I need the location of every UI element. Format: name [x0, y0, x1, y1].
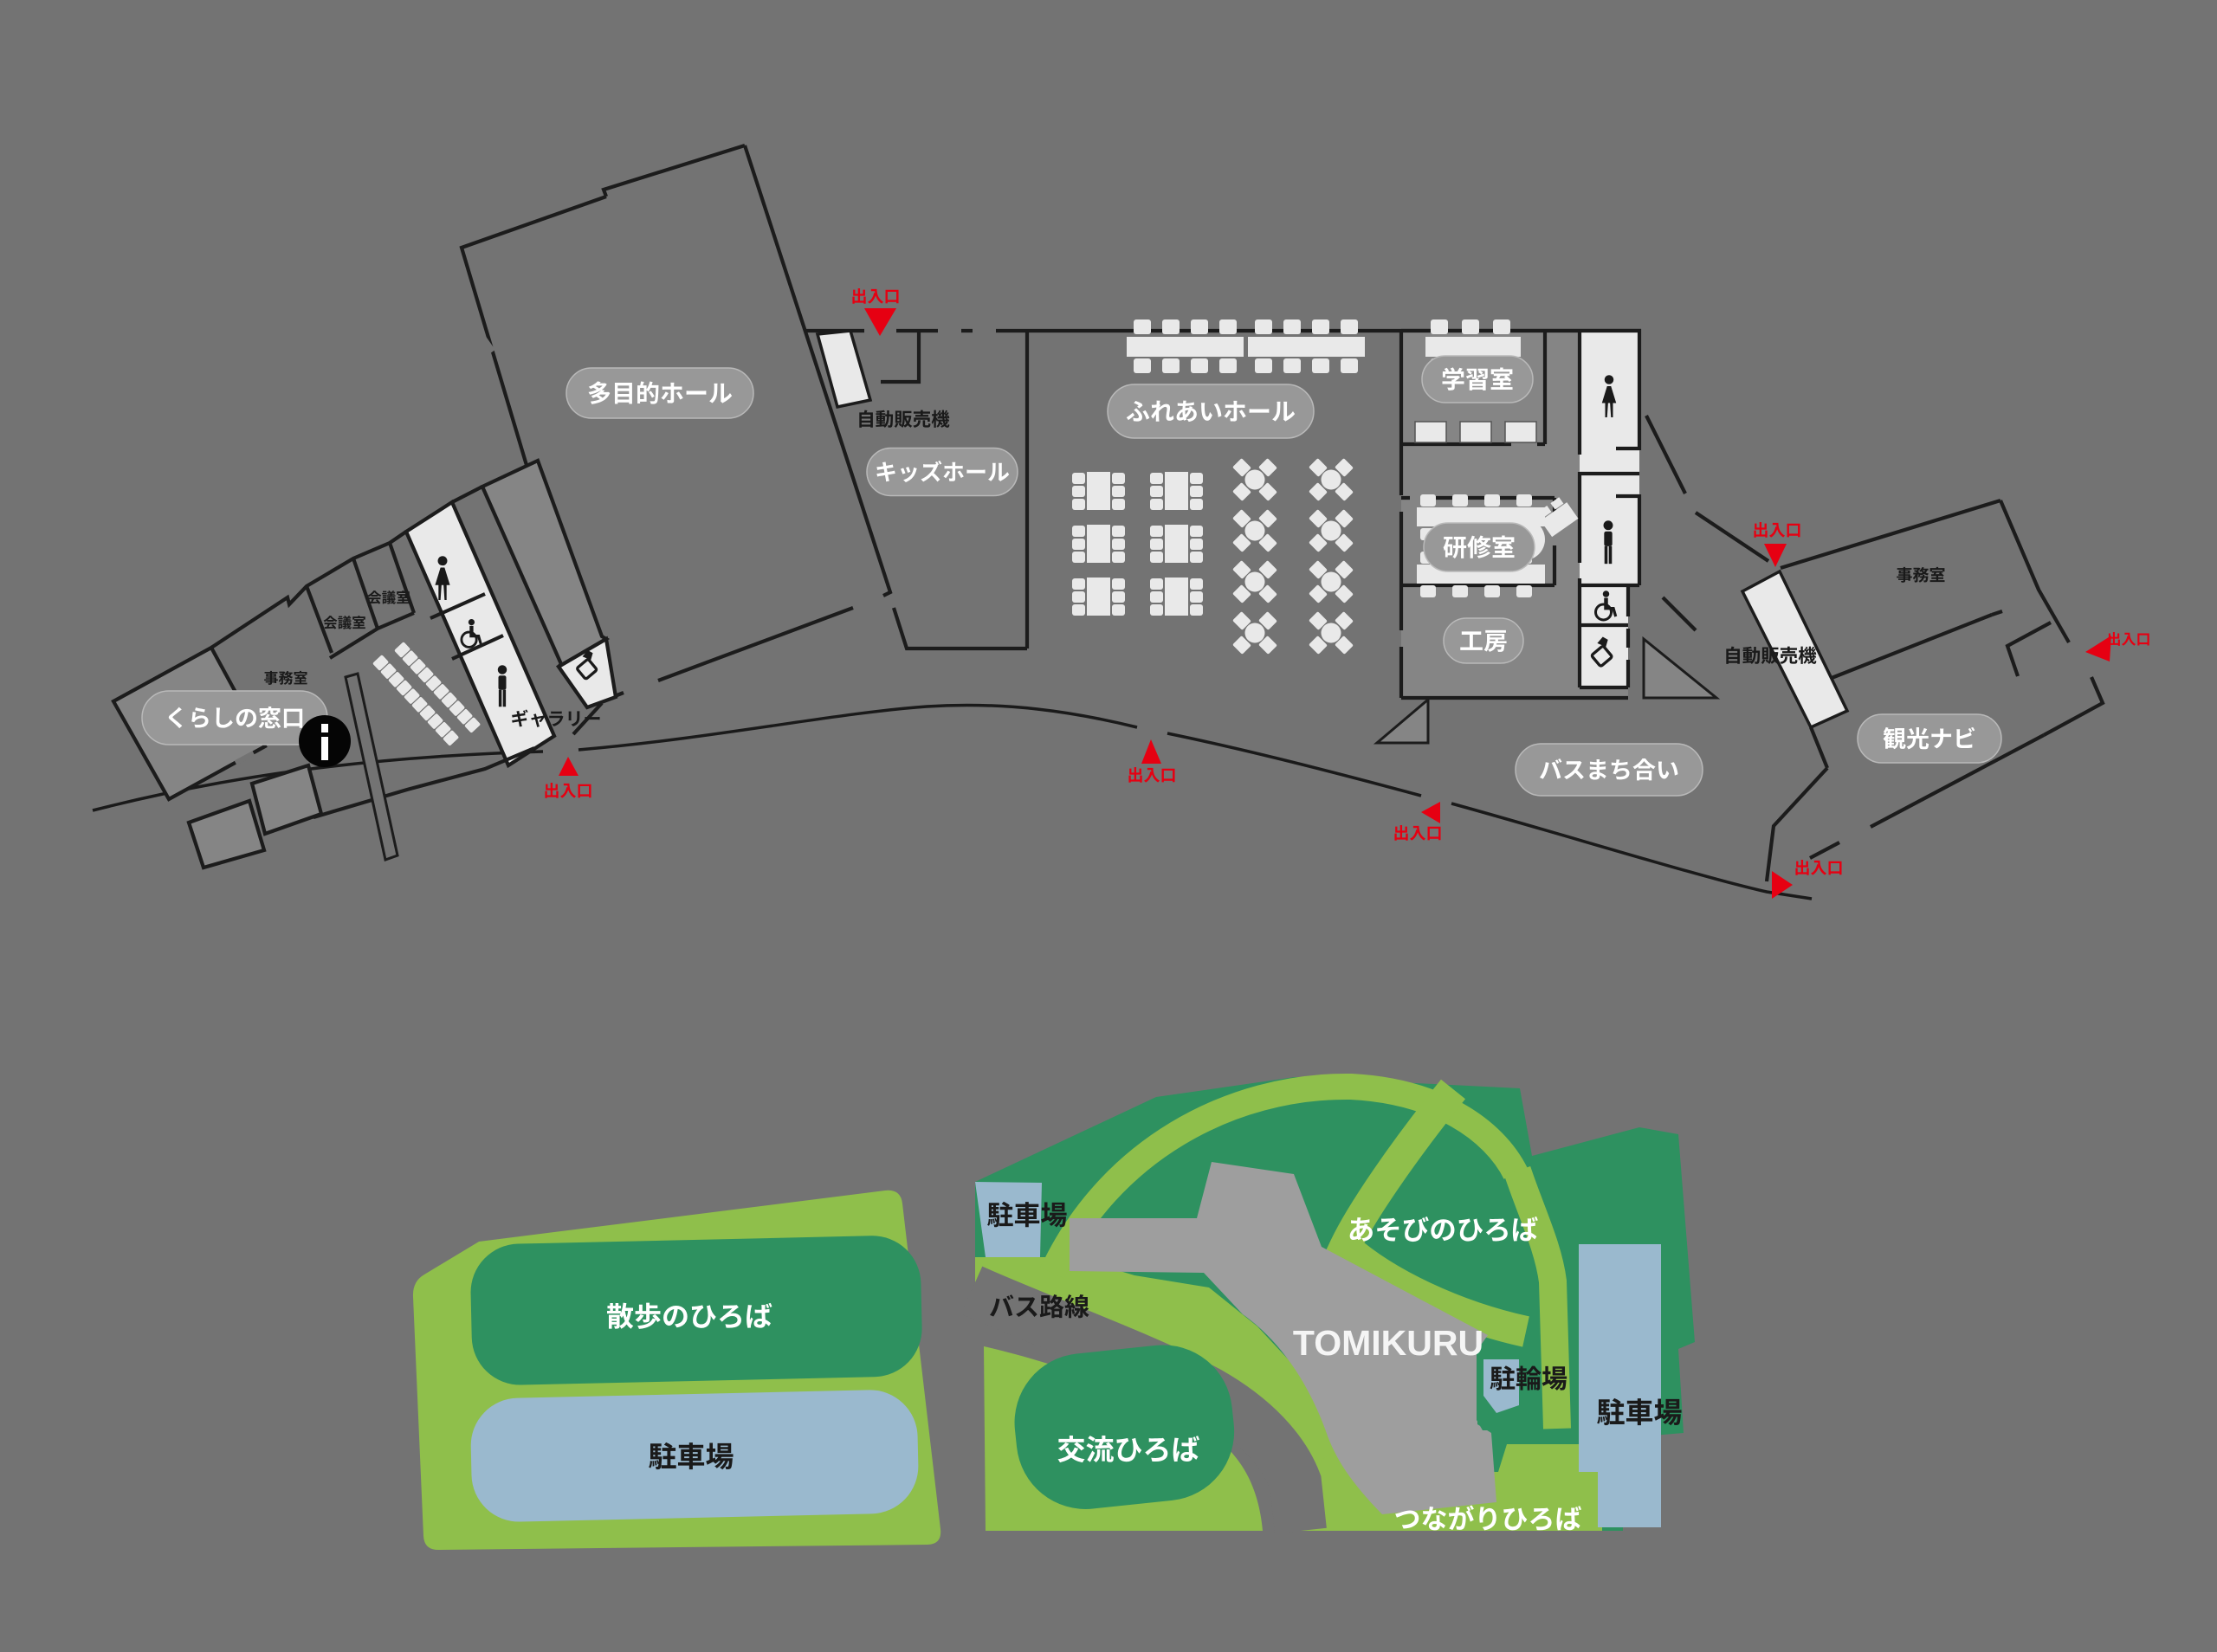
svg-text:TOMIKURU: TOMIKURU — [1293, 1323, 1483, 1363]
